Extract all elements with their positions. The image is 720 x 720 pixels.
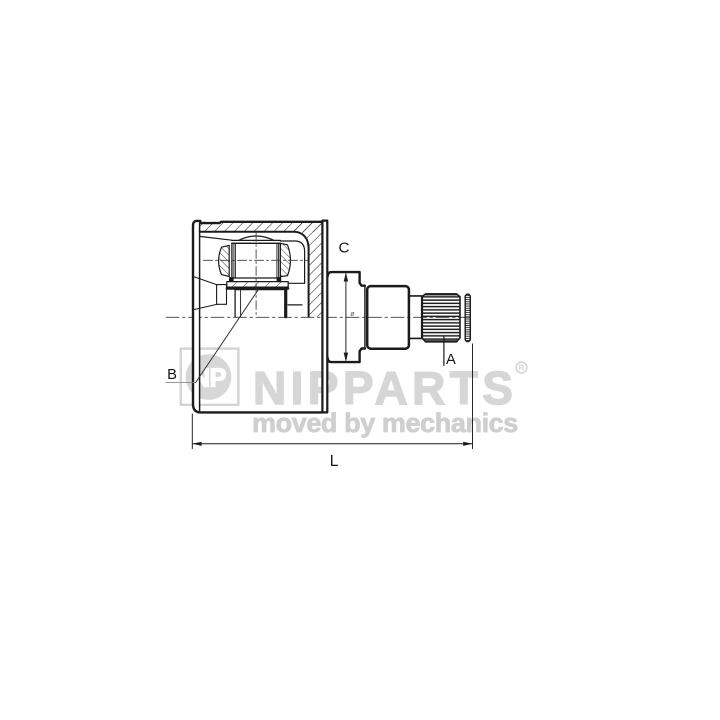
svg-text:ø: ø xyxy=(350,309,355,318)
svg-text:C: C xyxy=(339,239,350,256)
svg-text:A: A xyxy=(446,352,456,368)
svg-text:NIPPARTS: NIPPARTS xyxy=(253,362,517,414)
svg-text:L: L xyxy=(330,453,339,470)
svg-text:B: B xyxy=(167,367,177,383)
svg-text:R: R xyxy=(519,364,525,373)
